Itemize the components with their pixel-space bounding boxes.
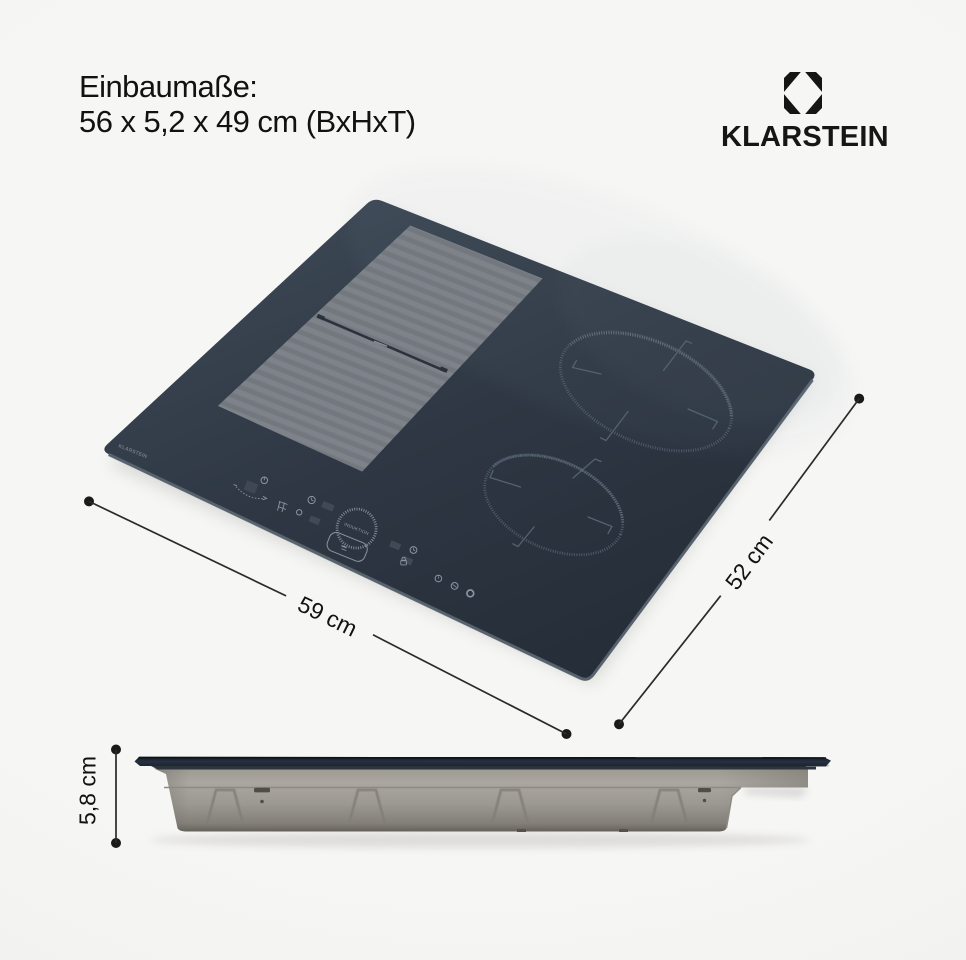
svg-text:59 cm: 59 cm: [294, 591, 362, 642]
svg-text:52 cm: 52 cm: [720, 529, 778, 595]
svg-text:5,8 cm: 5,8 cm: [75, 756, 101, 825]
